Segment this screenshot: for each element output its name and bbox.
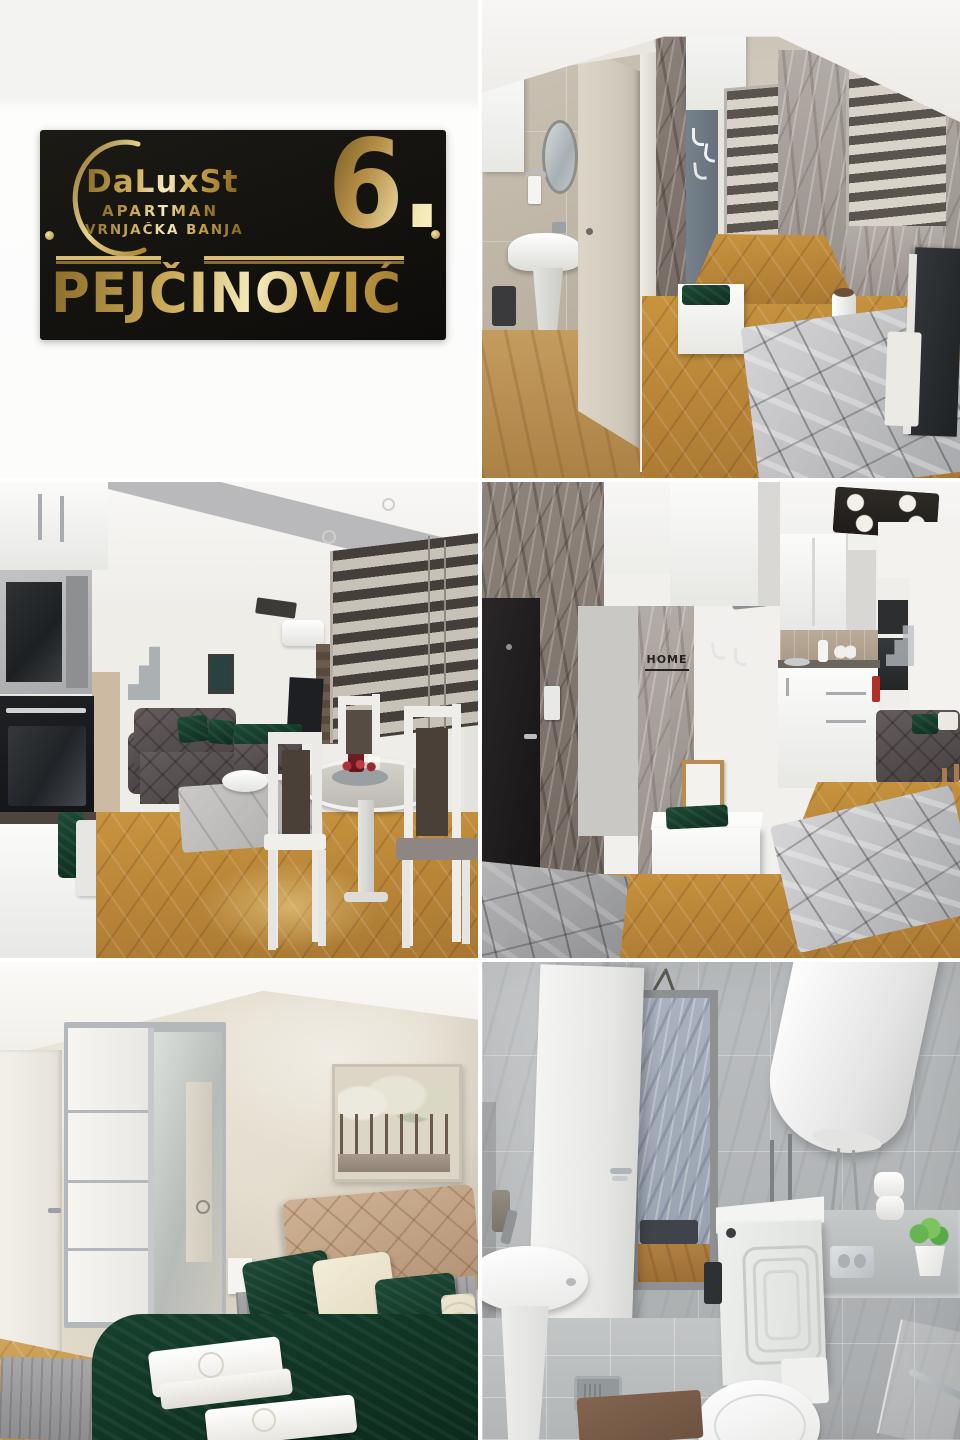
entrance-door [482, 598, 540, 882]
paper-towel [818, 640, 828, 662]
sofa-pillow [912, 714, 938, 734]
door-handle [612, 1176, 628, 1181]
sunlight-patch [200, 862, 380, 952]
door-handle [48, 1208, 61, 1213]
drawer-handle [826, 720, 866, 723]
flower-decor [336, 758, 380, 774]
wall-decal-branch [664, 968, 675, 992]
drawer-handle [826, 692, 866, 695]
recessed-light [255, 597, 297, 618]
brand-name: DaLuxSt [86, 164, 239, 200]
sofa-pillow [207, 719, 235, 745]
toilet-paper-roll [874, 1172, 904, 1198]
round-mirror [542, 120, 578, 194]
logo-panel: DaLuxSt APARTMAN VRNJAČKA BANJA 6. PEJČI… [0, 0, 478, 478]
hall-mat-view [640, 1220, 698, 1244]
dining-chair-top [338, 696, 380, 705]
family-name: PEJČINOVIĆ [51, 262, 441, 325]
cabinet-handle [60, 496, 64, 542]
coat-hook-icon [734, 648, 746, 666]
sink-drain [566, 1278, 576, 1286]
hand-towel [528, 176, 541, 204]
sofa-pillow [938, 712, 958, 730]
photo-entrance-hall [482, 0, 960, 478]
coat-hook-icon [692, 128, 704, 146]
dining-chair-backpanel [416, 728, 448, 836]
washer-knob [726, 1228, 736, 1238]
heater-panel [884, 331, 921, 426]
trash-bin-lid [834, 288, 854, 297]
dining-chair-leg [402, 860, 410, 948]
succulent-plant [906, 1214, 950, 1250]
oven-glass [8, 726, 86, 806]
cabinet-handle [38, 494, 42, 540]
microwave-window [6, 582, 62, 682]
sofa-pillow [177, 715, 210, 744]
photo-bathroom [482, 962, 960, 1440]
toilet-paper-roll [876, 1196, 904, 1220]
left-dot-icon [45, 231, 54, 240]
toilet-brush [704, 1262, 722, 1304]
counter-jars [834, 642, 856, 662]
bathroom-sink [508, 233, 582, 271]
coat-hook-icon [744, 624, 756, 642]
painting-trunks [340, 1114, 448, 1158]
cabinet-side-shadow [758, 482, 780, 606]
door-handle [524, 734, 537, 739]
brand-location: VRNJAČKA BANJA [85, 222, 244, 238]
bed-ottoman [0, 1356, 101, 1440]
bath-mat [576, 1390, 703, 1440]
mirror-reflection [186, 1082, 212, 1262]
dining-chair-backpanel [346, 710, 372, 754]
dining-chair-seat [396, 838, 478, 860]
table-base [344, 892, 388, 902]
wall-picture [208, 654, 234, 694]
photo-living-room [0, 482, 478, 958]
apartment-number: 6. [327, 124, 440, 246]
cabinet-divider [812, 538, 815, 626]
heater-pipe [831, 1148, 841, 1212]
zebra-blind-window [724, 83, 782, 244]
door-handle [610, 1168, 632, 1174]
hall-parquet-view [638, 1244, 710, 1282]
flush-plate [830, 1246, 874, 1278]
photo-bedroom [0, 962, 478, 1440]
home-sign: HOME [645, 653, 689, 671]
photo-collage: DaLuxSt APARTMAN VRNJAČKA BANJA 6. PEJČI… [0, 0, 960, 1440]
faucet [552, 222, 566, 233]
dining-chair-seat [264, 834, 326, 850]
bench-cloth [665, 804, 728, 829]
hanging-cloth [872, 676, 880, 702]
dining-chair-leg [268, 850, 276, 950]
wardrobe-divider [68, 1180, 148, 1183]
flush-button [854, 1254, 866, 1268]
bathroom-bin [492, 286, 516, 326]
heater-pipe [852, 1150, 859, 1210]
oven-handle [6, 708, 86, 713]
dining-chair-frame [338, 696, 346, 760]
brand-subtitle: APARTMAN [102, 202, 219, 220]
ceiling-spot-icon [322, 530, 336, 544]
kitchen-lower-cabinets [778, 668, 878, 788]
photo-kitchen-hallway: HOME [482, 482, 960, 958]
dining-chair-frame [452, 704, 461, 942]
flush-button [838, 1254, 850, 1268]
bench-cushion [682, 285, 730, 305]
wardrobe-divider [68, 1110, 148, 1113]
wall-decal-branch [653, 971, 667, 992]
dining-chair-top [268, 732, 322, 744]
coat-hook-icon [702, 618, 714, 636]
backsplash-tiles [92, 672, 120, 814]
dining-chair-leg [462, 860, 470, 944]
bedroom-door [0, 1050, 62, 1380]
wardrobe-door-left [68, 1028, 148, 1322]
dining-chair-leg [318, 850, 326, 946]
peephole-icon [506, 644, 512, 650]
dining-chair-top [404, 706, 461, 717]
ceiling-spot-icon [382, 498, 395, 511]
air-conditioner [282, 620, 324, 646]
wardrobe-divider [68, 1248, 148, 1251]
mirror-clock-reflection [196, 1200, 210, 1214]
door-handle [586, 228, 593, 235]
table-leg [358, 800, 374, 896]
kitchen-corner-cabinet [846, 550, 876, 634]
right-dot-icon [431, 230, 440, 239]
coffee-table [222, 770, 268, 792]
painting-ground [338, 1154, 450, 1172]
logo-card: DaLuxSt APARTMAN VRNJAČKA BANJA 6. PEJČI… [40, 130, 446, 340]
interior-door [584, 612, 634, 830]
dining-chair-backpanel [282, 750, 310, 842]
microwave-controls [66, 576, 88, 688]
intercom [544, 686, 560, 720]
kitchen-upper-cabinet [0, 482, 108, 570]
bathroom-door [578, 28, 642, 468]
marble-rug [482, 860, 629, 958]
cabinet-handle [786, 678, 789, 696]
kitchen-sink [784, 658, 810, 666]
stair-decor [128, 628, 160, 700]
washer-door-ring [763, 1269, 801, 1340]
